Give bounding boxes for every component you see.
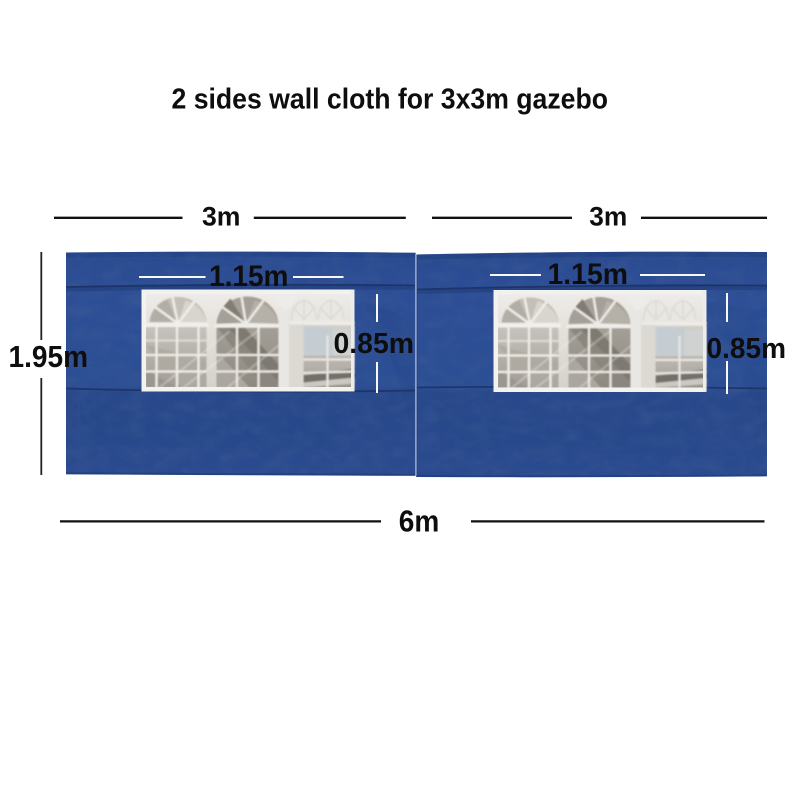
svg-text:1.15m: 1.15m xyxy=(548,258,629,291)
svg-text:1.95m: 1.95m xyxy=(9,340,89,374)
svg-text:3m: 3m xyxy=(202,201,241,231)
svg-text:0.85m: 0.85m xyxy=(707,333,787,365)
svg-text:2 sides wall cloth for 3x3m ga: 2 sides wall cloth for 3x3m gazebo xyxy=(172,84,609,116)
svg-text:1.15m: 1.15m xyxy=(209,260,289,293)
svg-text:6m: 6m xyxy=(399,505,440,539)
svg-text:3m: 3m xyxy=(589,202,627,232)
svg-text:0.85m: 0.85m xyxy=(334,328,415,360)
